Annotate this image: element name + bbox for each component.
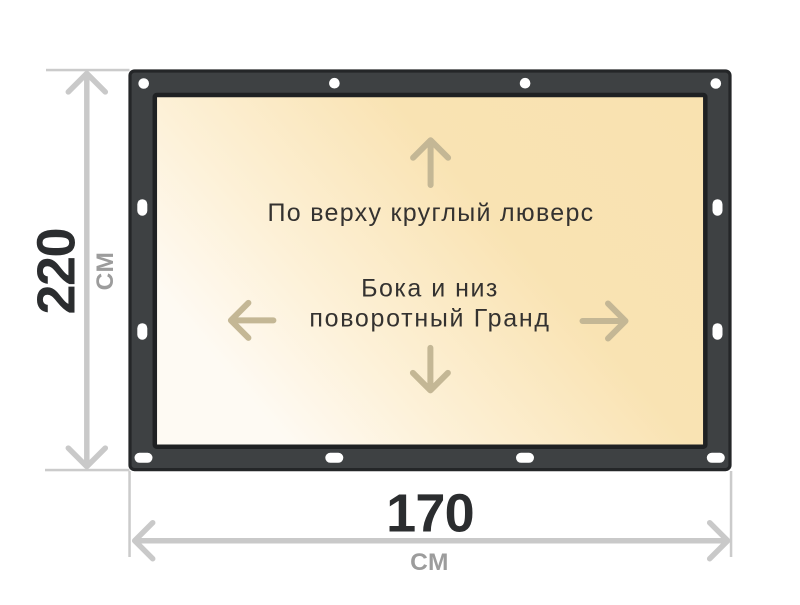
svg-text:170: 170 <box>386 484 474 544</box>
svg-text:220: 220 <box>27 229 87 315</box>
svg-text:Бока и низ: Бока и низ <box>361 274 499 302</box>
svg-text:СМ: СМ <box>410 549 449 576</box>
svg-text:СМ: СМ <box>92 252 119 291</box>
svg-text:По верху круглый люверс: По верху круглый люверс <box>268 199 595 227</box>
svg-text:поворотный Гранд: поворотный Гранд <box>309 305 550 333</box>
